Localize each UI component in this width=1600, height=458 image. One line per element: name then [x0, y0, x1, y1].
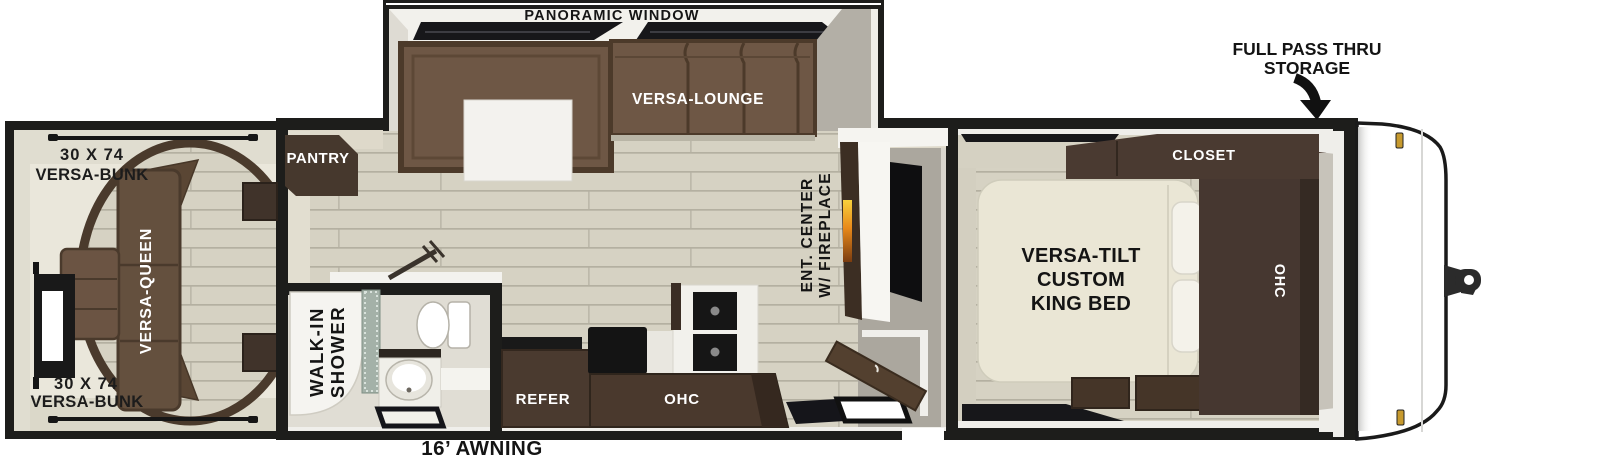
svg-text:CUSTOM: CUSTOM — [1037, 269, 1125, 291]
svg-text:CLOSET: CLOSET — [1172, 148, 1236, 164]
svg-text:FULL PASS THRU: FULL PASS THRU — [1232, 39, 1381, 59]
svg-text:OHC: OHC — [664, 391, 700, 408]
svg-text:SHOWER: SHOWER — [327, 306, 348, 398]
svg-text:30 X 74: 30 X 74 — [60, 146, 124, 164]
svg-text:KING BED: KING BED — [1031, 293, 1131, 315]
svg-text:VERSA-LOUNGE: VERSA-LOUNGE — [632, 91, 764, 108]
svg-text:VERSA-TILT: VERSA-TILT — [1021, 245, 1140, 267]
svg-text:16’ AWNING: 16’ AWNING — [421, 437, 543, 458]
svg-text:STORAGE: STORAGE — [1264, 58, 1350, 78]
svg-text:REFER: REFER — [516, 391, 571, 408]
svg-text:VERSA-BUNK: VERSA-BUNK — [35, 166, 148, 184]
svg-text:VERSA-BUNK: VERSA-BUNK — [30, 393, 143, 411]
svg-text:W/ FIREPLACE: W/ FIREPLACE — [817, 172, 834, 297]
svg-text:WALK-IN: WALK-IN — [306, 307, 327, 397]
svg-text:PANTRY: PANTRY — [287, 150, 350, 167]
svg-text:OHC: OHC — [1271, 264, 1287, 299]
svg-text:VERSA-QUEEN: VERSA-QUEEN — [138, 228, 155, 354]
svg-text:PANORAMIC WINDOW: PANORAMIC WINDOW — [524, 8, 699, 24]
svg-text:ENT. CENTER: ENT. CENTER — [799, 178, 816, 293]
svg-text:30 X 74: 30 X 74 — [54, 375, 118, 393]
